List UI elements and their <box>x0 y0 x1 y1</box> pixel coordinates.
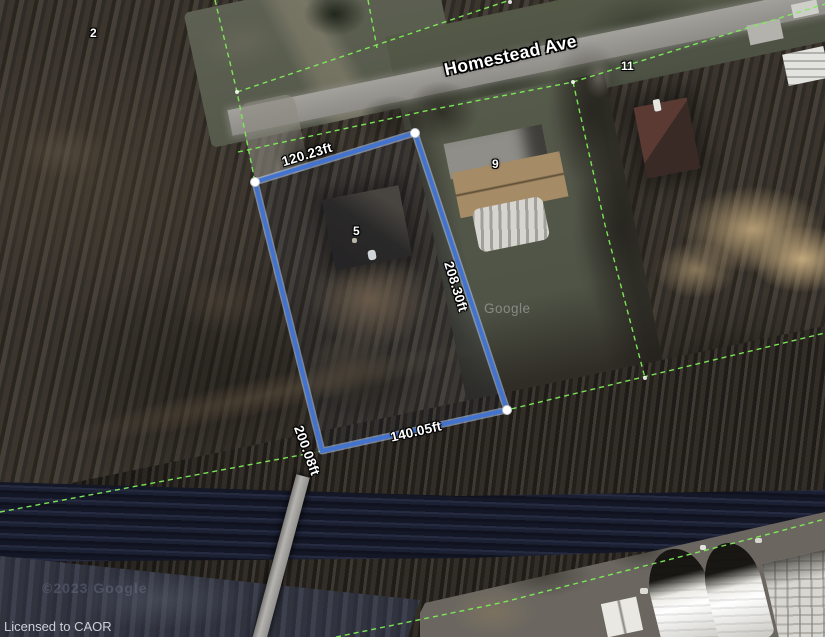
satellite-map-canvas[interactable]: Homestead Ave 120.23ft 208.30ft 140.05ft… <box>0 0 825 637</box>
parcel-number-2: 2 <box>90 26 97 40</box>
cadastral-line-north-stub <box>368 0 377 48</box>
cadastral-line-farm <box>336 519 825 637</box>
vertex-handle-se <box>503 406 512 415</box>
vertex-handle-ne <box>411 129 420 138</box>
cadastral-junction-dot <box>643 376 647 380</box>
cadastral-line-road-north <box>237 0 510 92</box>
copyright-watermark: ©2023 Google <box>42 580 148 596</box>
google-watermark: Google <box>484 301 531 316</box>
cadastral-line-side-9-11 <box>573 82 645 378</box>
cadastral-junction-dot <box>508 0 512 4</box>
vertex-handle-nw <box>251 178 260 187</box>
parcel-number-9: 9 <box>492 157 499 171</box>
parcel-number-11: 11 <box>621 59 634 73</box>
cadastral-junction-dot <box>235 90 239 94</box>
license-attribution: Licensed to CAOR <box>4 619 112 634</box>
parcel-overlay <box>0 0 825 637</box>
cadastral-line-road-south <box>238 4 825 152</box>
parcel-number-5: 5 <box>353 224 360 238</box>
cadastral-junction-dot <box>571 80 575 84</box>
cadastral-line-west <box>215 0 255 182</box>
